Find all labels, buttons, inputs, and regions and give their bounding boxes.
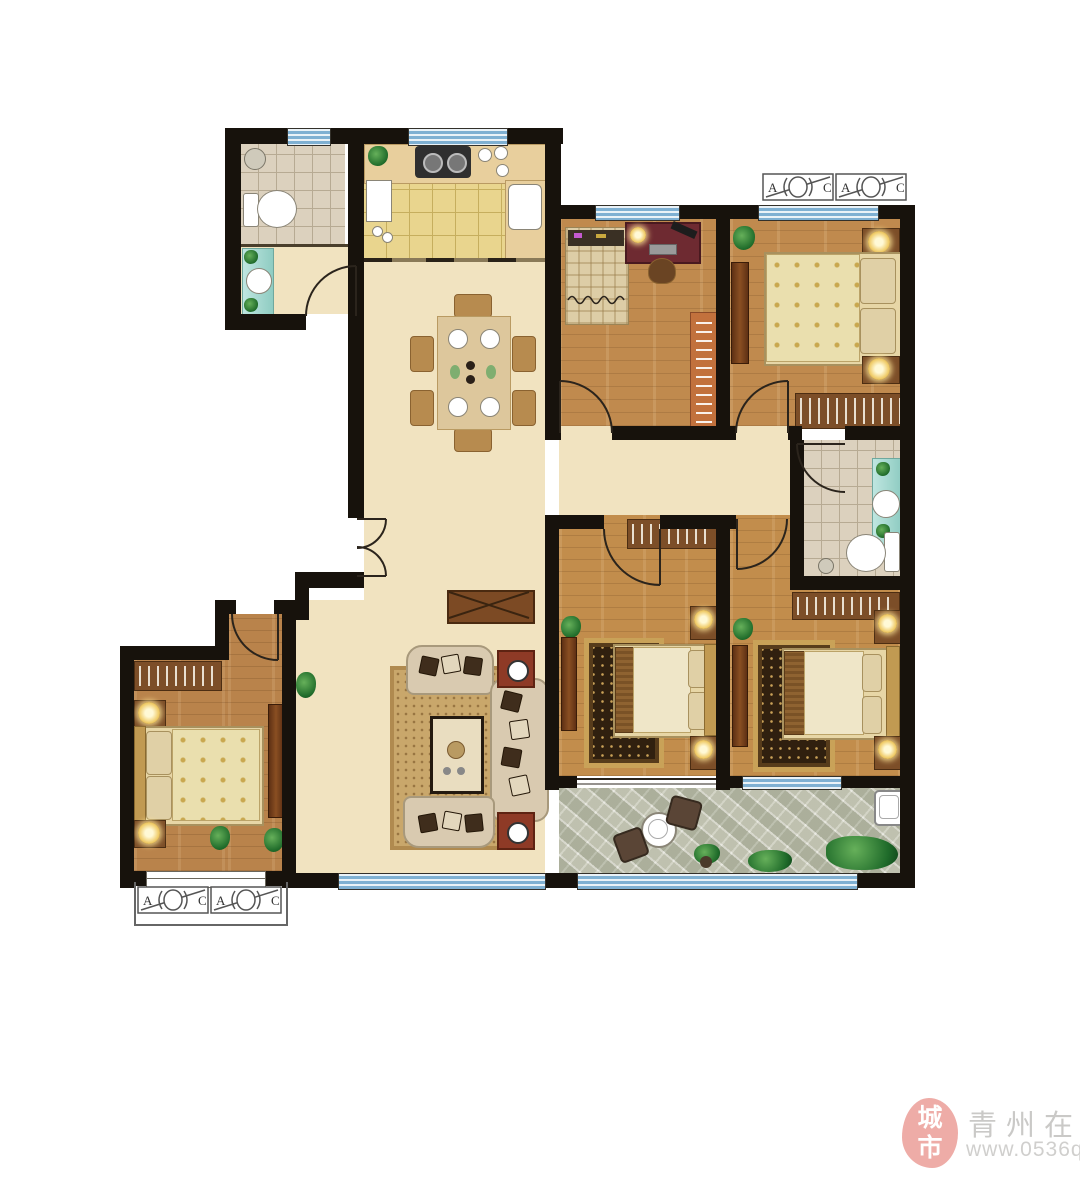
bookshelf bbox=[690, 312, 718, 428]
wall bbox=[228, 600, 236, 614]
wall bbox=[790, 576, 900, 590]
kitchen-sliding-track bbox=[364, 258, 545, 262]
bed-duvet bbox=[766, 254, 860, 362]
wall bbox=[788, 426, 802, 440]
lamp-icon bbox=[878, 614, 897, 633]
shower-head-icon bbox=[244, 148, 266, 170]
lamp-icon bbox=[694, 610, 713, 629]
wall bbox=[348, 330, 364, 518]
lamp-icon bbox=[878, 740, 897, 759]
bed-duvet bbox=[172, 729, 260, 821]
watermark-seal-char-bottom: 市 bbox=[902, 1133, 958, 1163]
partition-line bbox=[241, 244, 348, 247]
wall bbox=[225, 128, 241, 330]
coffee-table bbox=[430, 716, 484, 794]
balcony-greenery bbox=[826, 836, 898, 870]
dining-chair bbox=[410, 390, 434, 426]
wall bbox=[282, 600, 296, 888]
wall bbox=[790, 440, 804, 576]
tv-cabinet bbox=[731, 262, 749, 364]
wall bbox=[856, 873, 915, 888]
wall bbox=[544, 873, 577, 888]
wall bbox=[295, 572, 309, 620]
wall bbox=[545, 426, 560, 440]
window bbox=[287, 128, 331, 146]
loveseat-sofa bbox=[406, 645, 494, 695]
dining-chair bbox=[454, 294, 492, 318]
ac-letter: A bbox=[841, 180, 851, 195]
floor-plan-image: A C A C A C A C 城 市 bbox=[0, 0, 1080, 1180]
bed-headboard bbox=[134, 726, 146, 824]
vanity-sink-icon bbox=[872, 490, 900, 518]
kitchen-bowl-icon bbox=[496, 164, 509, 177]
bed-pillow bbox=[146, 776, 172, 820]
dining-chair bbox=[410, 336, 434, 372]
kitchen-bowl-icon bbox=[478, 148, 492, 162]
bed-headboard bbox=[886, 646, 900, 738]
bed-blanket bbox=[615, 647, 635, 733]
bedroom-nook-floor bbox=[730, 515, 790, 591]
dining-chair bbox=[512, 390, 536, 426]
loveseat-sofa bbox=[403, 796, 495, 848]
toilet-bowl-icon bbox=[846, 534, 886, 572]
watermark: 城 市 青州在线 www.0536qz.com bbox=[898, 1092, 1078, 1178]
window bbox=[577, 873, 858, 890]
toilet-tank-icon bbox=[884, 532, 900, 572]
dining-table bbox=[437, 316, 511, 430]
lamp-icon bbox=[868, 358, 890, 380]
window bbox=[595, 205, 680, 221]
ac-letter: C bbox=[896, 180, 905, 195]
bed-pillow bbox=[860, 258, 896, 304]
fridge-icon bbox=[366, 180, 392, 222]
bed-pillow bbox=[862, 654, 882, 692]
bed-duvet bbox=[804, 651, 864, 735]
lamp-icon bbox=[868, 231, 890, 253]
lamp-icon bbox=[138, 822, 160, 844]
wall bbox=[302, 572, 364, 588]
bed-blanket bbox=[784, 651, 806, 735]
dining-chair bbox=[512, 336, 536, 372]
ac-letter: A bbox=[768, 180, 778, 195]
ac-unit-symbols-bottom: A C A C bbox=[134, 882, 288, 926]
kitchen-sink-icon bbox=[508, 184, 542, 230]
wall bbox=[215, 600, 229, 660]
ac-unit-symbols-top: A C A C bbox=[762, 172, 908, 202]
bed-pillow bbox=[862, 696, 882, 734]
watermark-seal-char-top: 城 bbox=[902, 1103, 958, 1133]
watermark-seal-icon: 城 市 bbox=[902, 1098, 958, 1168]
bed-duvet bbox=[633, 647, 691, 733]
wall bbox=[120, 646, 216, 660]
wardrobe bbox=[795, 393, 905, 429]
wall bbox=[845, 426, 900, 440]
ac-letter: C bbox=[198, 893, 207, 908]
wall bbox=[900, 205, 915, 888]
wall bbox=[120, 646, 134, 888]
lamp-icon bbox=[694, 740, 713, 759]
wall bbox=[612, 426, 736, 440]
toilet-bowl-icon bbox=[257, 190, 297, 228]
wall bbox=[716, 219, 730, 426]
bed-pillow bbox=[146, 731, 172, 775]
monitor-icon bbox=[670, 221, 697, 239]
window bbox=[338, 873, 546, 890]
wall bbox=[716, 515, 730, 790]
wall bbox=[225, 314, 306, 330]
kitchen-jar-icon bbox=[382, 232, 393, 243]
balcony-pot-icon bbox=[700, 856, 712, 868]
watermark-site-url: www.0536qz.com bbox=[966, 1138, 1080, 1162]
entry-console-table bbox=[447, 590, 535, 624]
tv-cabinet bbox=[561, 637, 577, 731]
ac-letter: A bbox=[216, 893, 226, 908]
wardrobe bbox=[134, 661, 222, 691]
window bbox=[408, 128, 508, 146]
kitchen-bowl-icon bbox=[494, 146, 508, 160]
wall bbox=[296, 873, 338, 888]
ac-letter: C bbox=[823, 180, 832, 195]
floor-drain-icon bbox=[818, 558, 834, 574]
side-table bbox=[497, 812, 535, 850]
keyboard-icon bbox=[649, 244, 677, 255]
wall bbox=[348, 128, 364, 330]
wall bbox=[545, 776, 577, 788]
dining-chair bbox=[454, 428, 492, 452]
ac-letter: A bbox=[143, 893, 153, 908]
wall bbox=[545, 515, 559, 790]
wall bbox=[274, 600, 282, 614]
bed-pillow bbox=[860, 308, 896, 354]
three-seat-sofa bbox=[490, 678, 549, 822]
window bbox=[742, 776, 842, 790]
tv-cabinet bbox=[732, 645, 748, 747]
wall bbox=[840, 776, 900, 788]
ac-letter: C bbox=[271, 893, 280, 908]
window bbox=[758, 205, 879, 221]
stove-icon bbox=[415, 146, 471, 178]
vanity-sink-icon bbox=[246, 268, 272, 294]
desk-chair bbox=[648, 258, 676, 284]
single-bed bbox=[565, 227, 629, 325]
wall bbox=[716, 776, 742, 788]
lamp-icon bbox=[138, 702, 160, 724]
wall bbox=[545, 128, 561, 440]
side-table bbox=[497, 650, 535, 688]
wall bbox=[225, 128, 563, 144]
